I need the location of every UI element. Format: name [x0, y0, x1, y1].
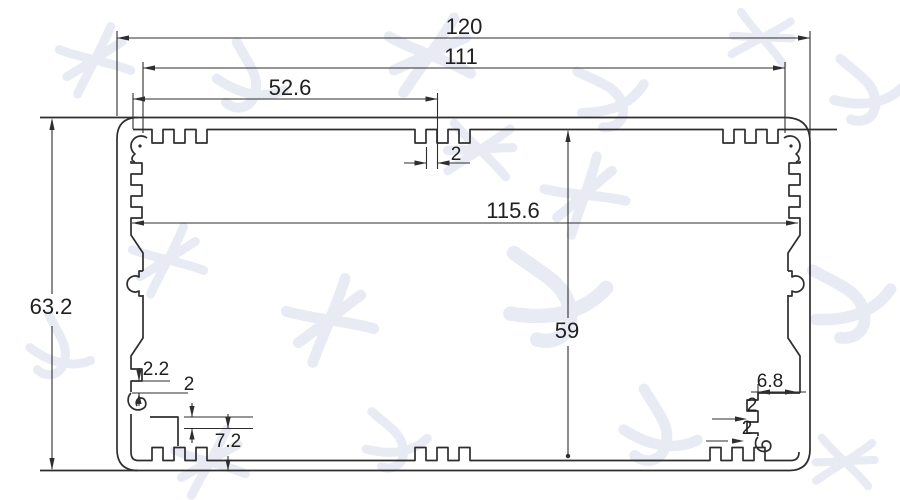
profile-right-keyhole-slot: [788, 271, 804, 296]
drawing-canvas: 120 111 52.6 2 115.6 59 63: [0, 0, 900, 500]
dim-top-rib-label: 2: [451, 144, 462, 165]
watermark: [25, 8, 900, 497]
dim-bl-wall-label: 2.2: [143, 359, 169, 380]
profile-hook-br: [756, 437, 771, 451]
dim-overall-height: 63.2: [30, 118, 73, 470]
watermark-glyph: [565, 48, 654, 135]
watermark-glyph: [56, 25, 134, 96]
profile-hook-bl: [128, 393, 146, 410]
boss-tl-center-mark: [138, 144, 141, 147]
dim-bl-step-label: 2: [184, 374, 195, 395]
profile-top-inner-ribs: [133, 130, 837, 144]
dim-groove-offset: 52.6: [133, 75, 438, 129]
dim-inner-height-label: 59: [555, 318, 579, 343]
dim-bl-step-height-label: 7.2: [215, 431, 241, 452]
profile-right-inner-lower: [788, 295, 800, 393]
extrusion-profile-outline: [40, 118, 837, 471]
profile-boss-tr: [784, 136, 800, 162]
watermark-glyph: [620, 387, 703, 467]
profile-left-inner-lower: [131, 295, 143, 392]
watermark-glyph: [25, 312, 98, 382]
watermark-glyph: [540, 153, 629, 237]
watermark-glyph: [813, 434, 878, 490]
watermark-glyph: [798, 246, 900, 347]
profile-fillet-tl: [117, 118, 138, 140]
dim-br-rib-2-label: 2: [742, 418, 753, 439]
dim-inner-width: 115.6: [132, 198, 798, 226]
dim-br-rib-2: 2: [706, 418, 752, 444]
dim-br-boss-label: 6.8: [757, 371, 783, 392]
profile-right-inner-upper: [788, 161, 800, 271]
dim-boss-spacing-label: 111: [444, 44, 477, 69]
profile-left-inner-corner: [131, 414, 138, 461]
dim-inner-width-label: 115.6: [486, 198, 539, 223]
dim-overall-height-label: 63.2: [30, 294, 73, 319]
dim-br-rib-1-label: 2: [747, 395, 758, 416]
watermark-glyph: [282, 275, 378, 364]
watermark-glyph: [827, 49, 900, 124]
watermark-glyph: [129, 225, 207, 296]
dim-br-boss: 6.8: [751, 371, 806, 399]
profile-drawing: 120 111 52.6 2 115.6 59 63: [0, 0, 900, 500]
dim-overall-width-label: 120: [446, 14, 483, 39]
dim-groove-offset-label: 52.6: [269, 75, 312, 100]
boss-tr-center-mark: [789, 144, 792, 147]
profile-boss-tl: [131, 136, 147, 162]
dim-bl-wall: 2.2: [132, 359, 188, 406]
profile-ledge-bl: [150, 417, 178, 446]
